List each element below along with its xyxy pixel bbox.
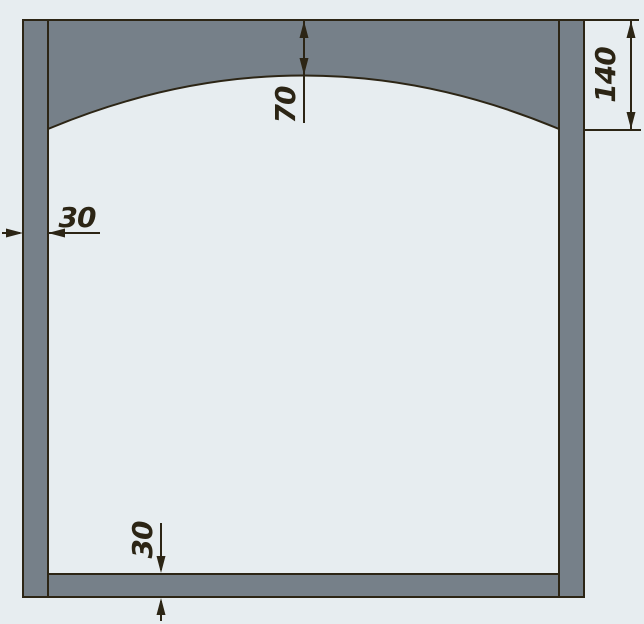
dim-30-bottom-label: 30 bbox=[126, 521, 159, 558]
dim-bottom-wall: 30 bbox=[126, 521, 166, 621]
dim-30-left-arrow-right-icon bbox=[6, 229, 23, 238]
dim-30-left-label: 30 bbox=[59, 201, 96, 234]
dim-140-label: 140 bbox=[589, 47, 622, 103]
right-stile bbox=[559, 20, 584, 597]
technical-drawing-canvas: 140 70 30 30 bbox=[0, 0, 644, 624]
left-stile bbox=[23, 20, 48, 597]
dim-140-arrow-down-icon bbox=[627, 112, 636, 129]
dim-left-wall: 30 bbox=[2, 201, 100, 238]
dim-70-label: 70 bbox=[269, 86, 302, 123]
dim-140-arrow-up-icon bbox=[627, 21, 636, 38]
bottom-rail bbox=[48, 574, 559, 597]
